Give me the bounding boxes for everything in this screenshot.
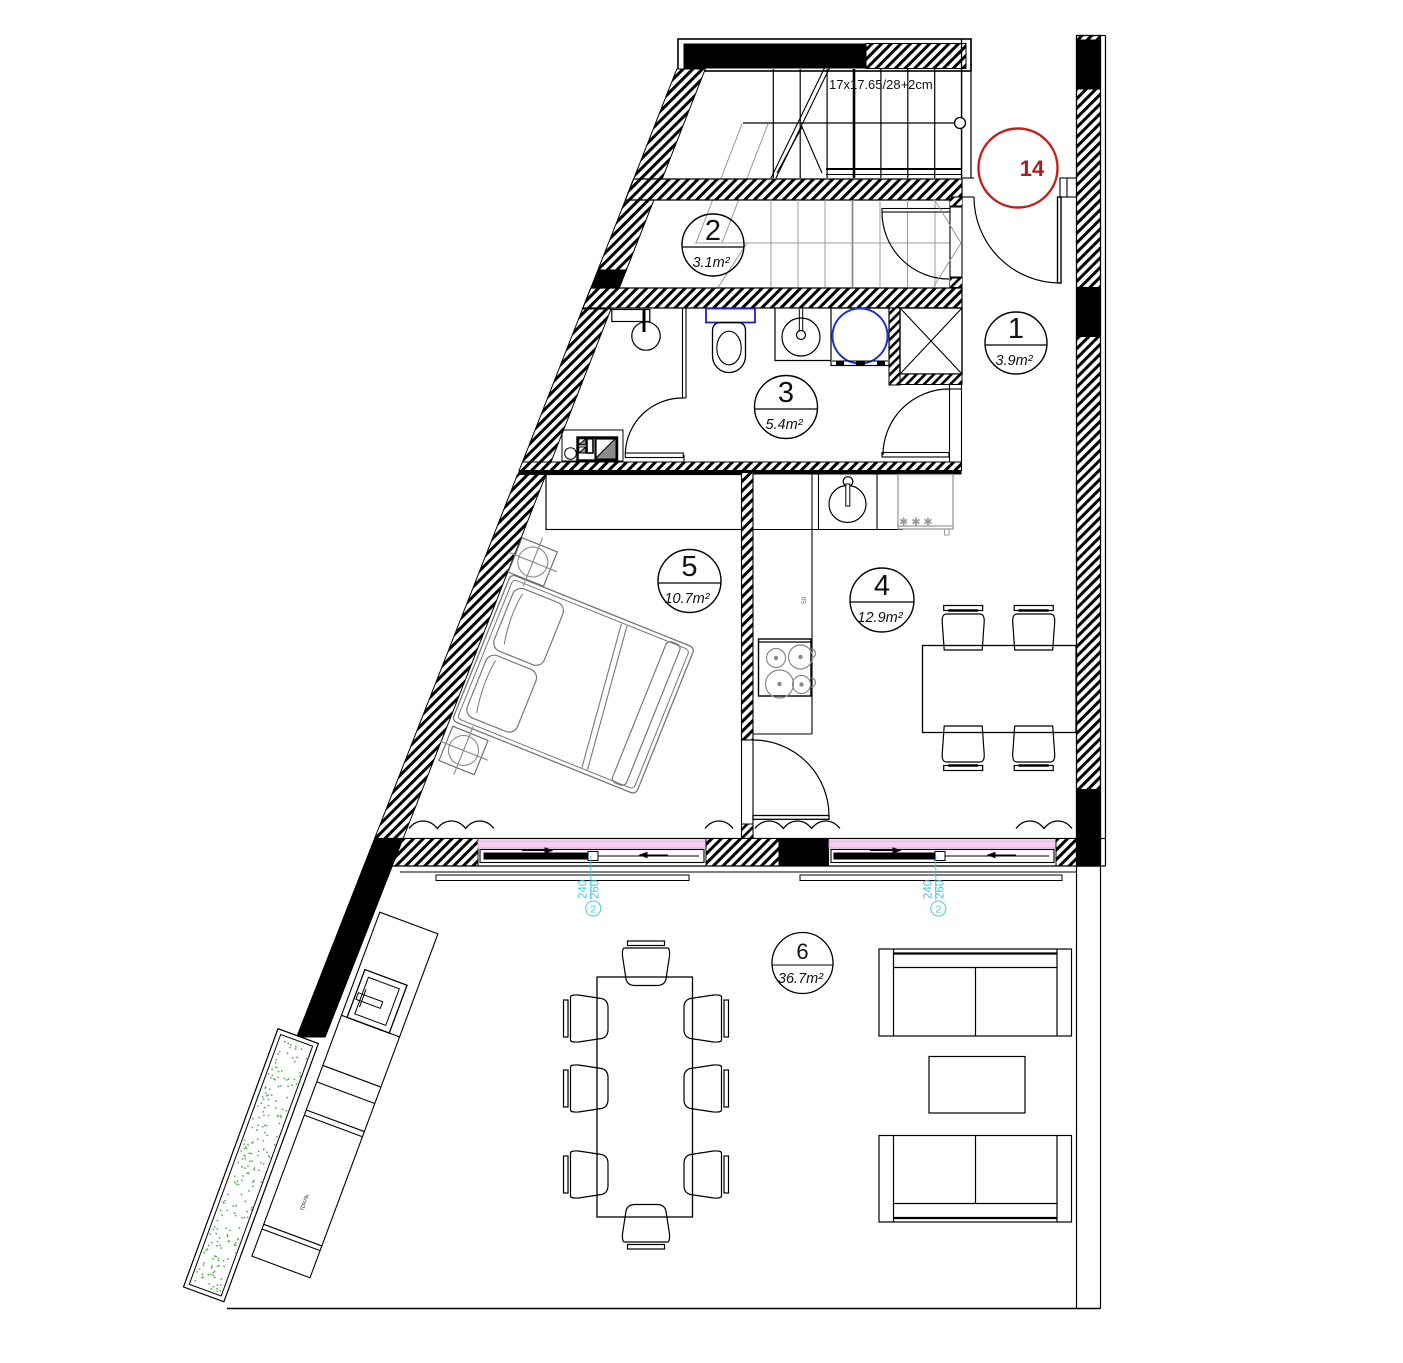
svg-text:4: 4: [874, 570, 890, 602]
svg-text:3.9m²: 3.9m²: [995, 353, 1033, 369]
svg-text:3.1m²: 3.1m²: [692, 255, 730, 271]
svg-text:17x17.65/28+2cm: 17x17.65/28+2cm: [829, 77, 933, 92]
svg-text:240: 240: [922, 880, 934, 899]
svg-text:50: 50: [801, 596, 808, 604]
svg-text:5: 5: [681, 551, 697, 583]
svg-text:2: 2: [935, 904, 941, 916]
svg-text:10.7m²: 10.7m²: [664, 591, 710, 607]
svg-text:2: 2: [590, 904, 596, 916]
svg-text:14: 14: [1020, 156, 1045, 181]
svg-text:260: 260: [934, 880, 946, 899]
svg-text:12.9m²: 12.9m²: [857, 610, 903, 626]
svg-text:1: 1: [1008, 313, 1024, 345]
svg-text:36.7m²: 36.7m²: [778, 971, 824, 987]
svg-text:6: 6: [796, 939, 808, 964]
svg-text:3: 3: [778, 377, 794, 409]
svg-text:✱✱✱: ✱✱✱: [899, 517, 936, 529]
svg-text:5.4m²: 5.4m²: [765, 417, 803, 433]
svg-text:240: 240: [577, 880, 589, 899]
svg-text:2: 2: [705, 215, 721, 247]
svg-text:260: 260: [589, 880, 601, 899]
